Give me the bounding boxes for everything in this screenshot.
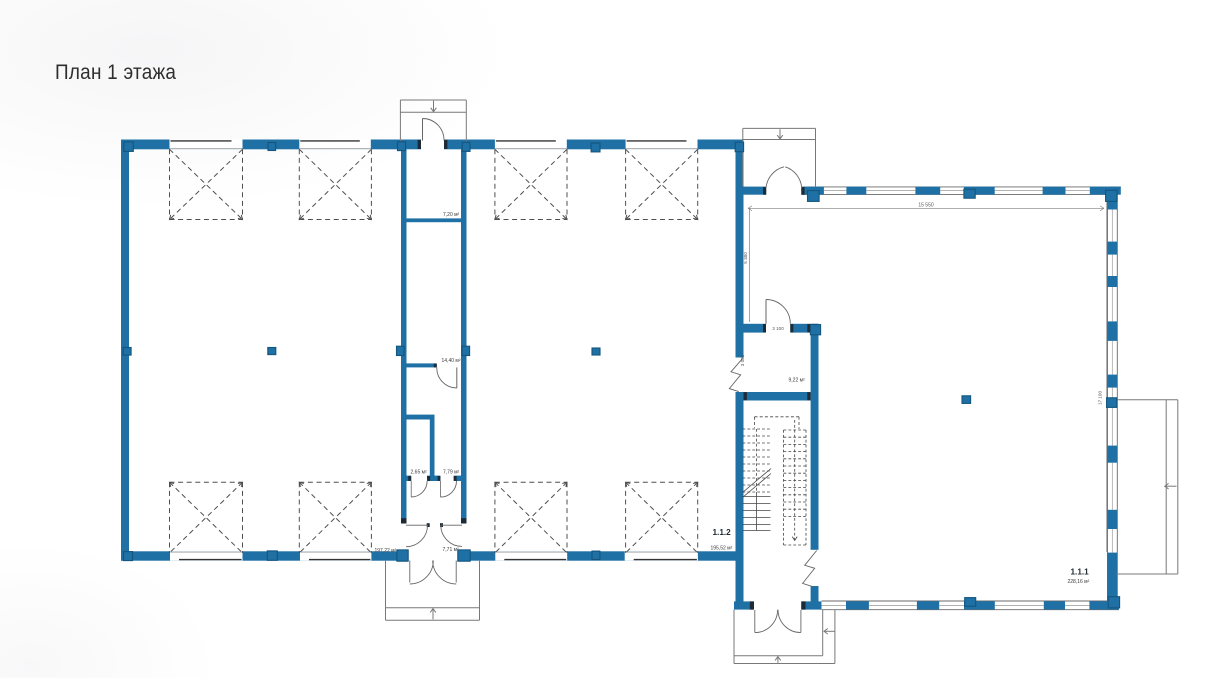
svg-text:9,22 м²: 9,22 м² bbox=[789, 378, 806, 384]
svg-text:7,79 м²: 7,79 м² bbox=[443, 470, 460, 476]
svg-text:15 550: 15 550 bbox=[918, 203, 934, 209]
svg-text:228,16 м²: 228,16 м² bbox=[1068, 579, 1090, 585]
svg-text:17 100: 17 100 bbox=[1098, 391, 1103, 405]
svg-text:1.1.2: 1.1.2 bbox=[713, 528, 732, 537]
svg-text:7,71 м²: 7,71 м² bbox=[443, 547, 460, 553]
svg-text:2,65 м²: 2,65 м² bbox=[411, 470, 428, 476]
svg-text:7,20 м²: 7,20 м² bbox=[443, 212, 460, 218]
svg-text:5 380: 5 380 bbox=[743, 252, 748, 264]
svg-text:1.1.1: 1.1.1 bbox=[1071, 568, 1090, 577]
svg-text:197,22 м²: 197,22 м² bbox=[375, 548, 397, 554]
svg-text:14,40 м²: 14,40 м² bbox=[442, 358, 461, 364]
svg-text:195,52 м²: 195,52 м² bbox=[711, 546, 733, 552]
svg-text:3 080: 3 080 bbox=[740, 354, 745, 366]
svg-text:3 100: 3 100 bbox=[772, 326, 784, 331]
